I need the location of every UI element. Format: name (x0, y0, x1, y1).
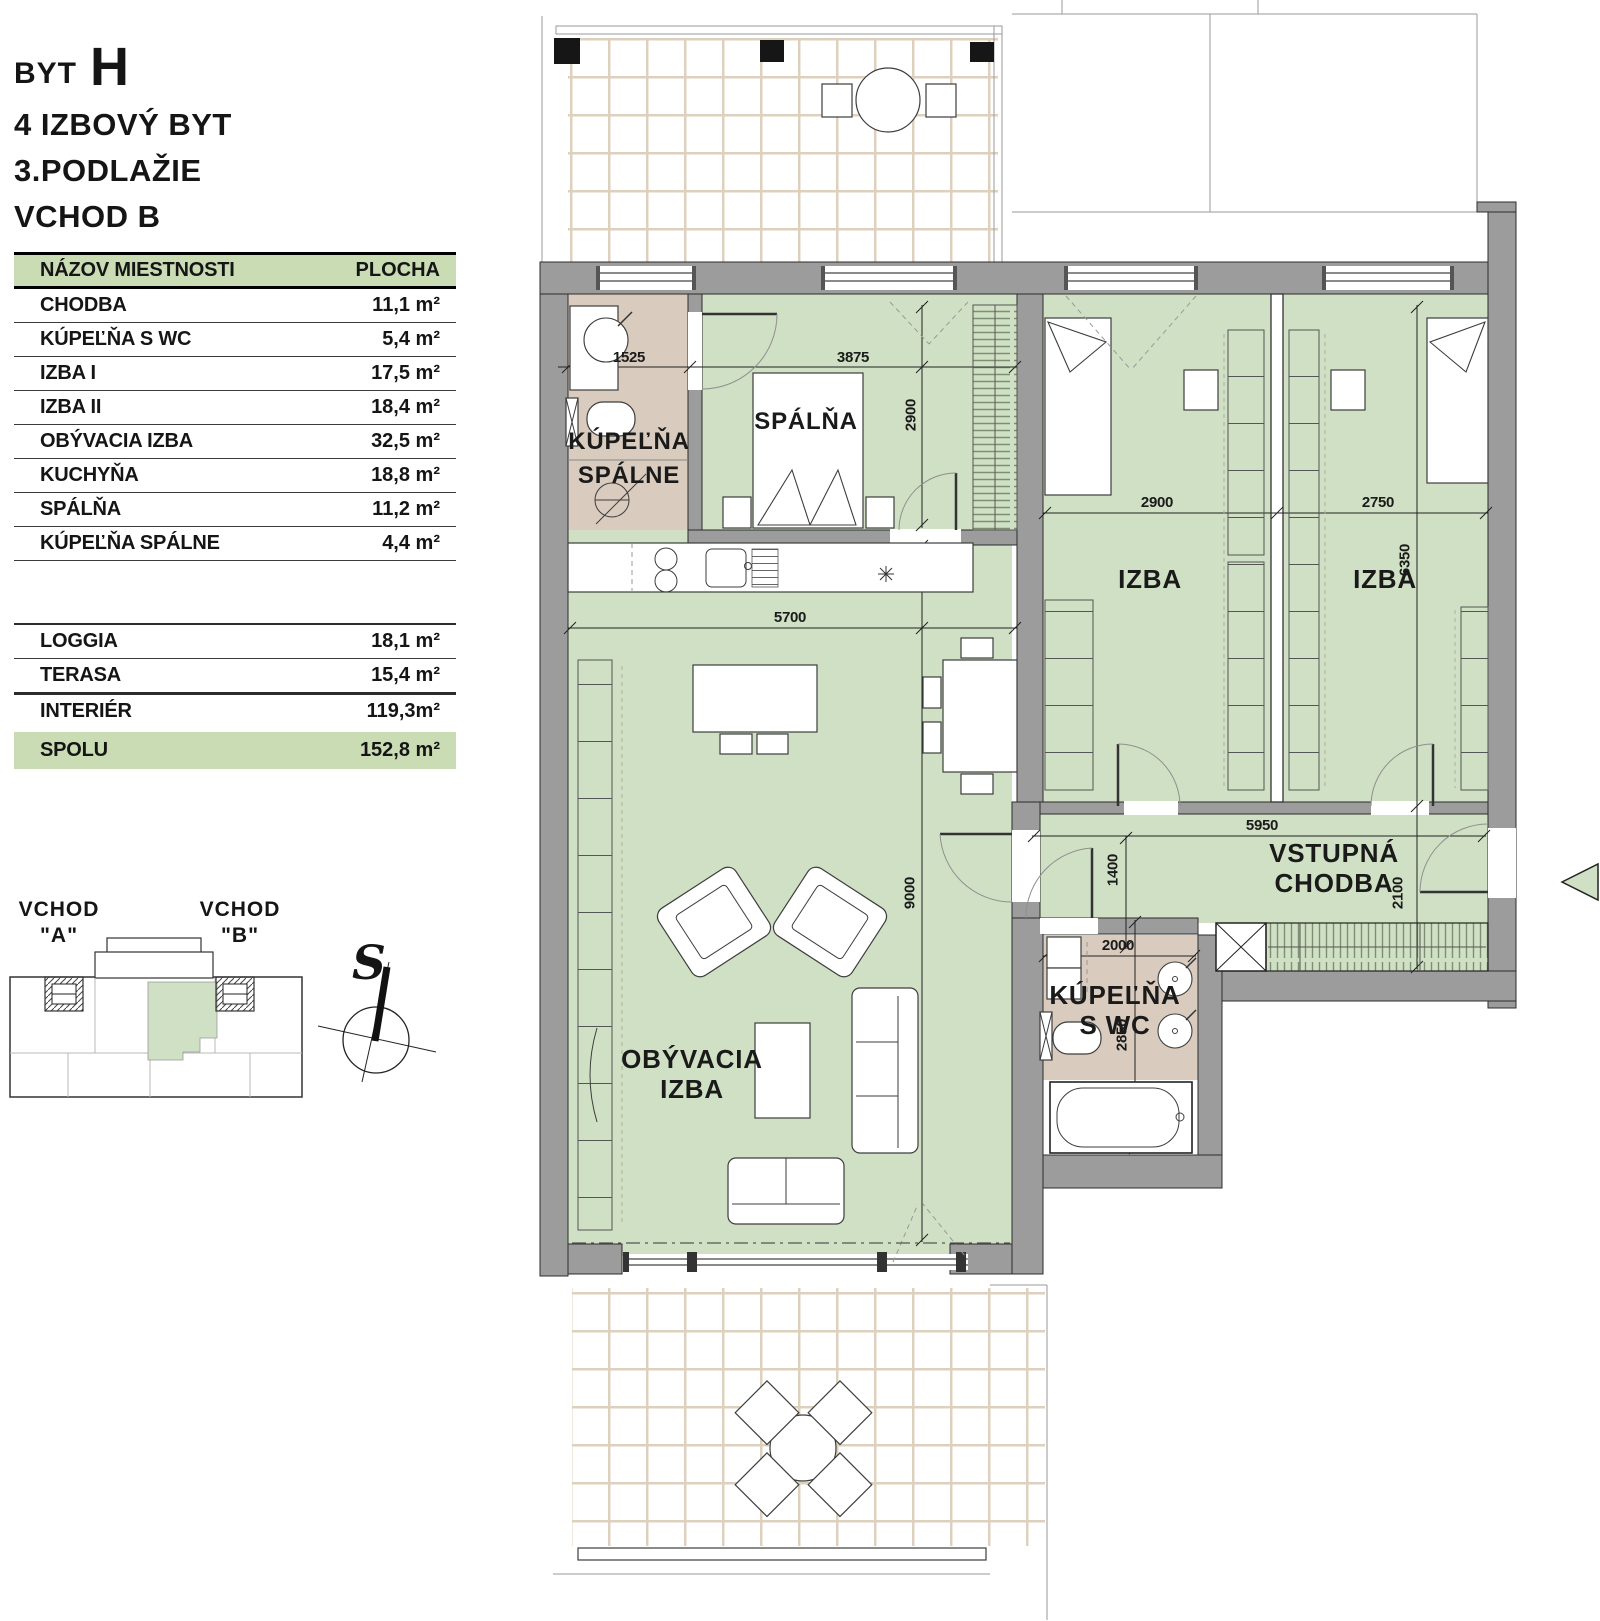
wardrobe (1461, 607, 1488, 790)
window (596, 266, 696, 290)
desk (1331, 370, 1365, 410)
table-row: OBÝVACIA IZBA32,5 m² (14, 425, 456, 459)
terrace-chair (822, 84, 852, 117)
header-name: NÁZOV MIESTNOSTI (14, 259, 235, 282)
terrace-top (542, 16, 1002, 262)
dim-bath2-depth: 2850 (1114, 1019, 1131, 1051)
wardrobe (1228, 330, 1264, 555)
column (760, 40, 784, 62)
dim-living-depth: 9000 (902, 877, 919, 909)
wall-cabinets (578, 660, 612, 1230)
unit-letter: H (90, 40, 129, 94)
table-row: IZBA II18,4 m² (14, 391, 456, 425)
dim-bath2-width: 2000 (1102, 937, 1134, 954)
terrace-table (856, 68, 920, 132)
room-label-obyvacia-2: IZBA (660, 1074, 724, 1105)
wardrobe (1289, 330, 1319, 790)
room-label-vstupna-2: CHODBA (1275, 868, 1394, 899)
nightstand (866, 497, 894, 528)
dim-hall-width: 5950 (1246, 817, 1278, 834)
entrance-label: VCHOD B (14, 201, 232, 232)
room-label-izba1: IZBA (1118, 564, 1182, 595)
light-symbol (878, 566, 894, 582)
kitchen (568, 543, 973, 592)
neighbor-outline (1012, 0, 1477, 212)
terrace-bottom (553, 1285, 1047, 1620)
dim-hall-passage: 1400 (1105, 854, 1122, 886)
floorplan-drawing (0, 0, 1600, 1621)
title-block: BYT H 4 IZBOVÝ BYT 3.PODLAŽIE VCHOD B (14, 40, 232, 232)
bathtub (1050, 1082, 1192, 1153)
room-label-kupelna-spalne-2: SPÁLNE (578, 462, 680, 490)
floorplan-sheet: BYT H 4 IZBOVÝ BYT 3.PODLAŽIE VCHOD B NÁ… (0, 0, 1600, 1621)
entrance-arrow (1562, 864, 1598, 900)
apartment-type: 4 IZBOVÝ BYT (14, 109, 232, 140)
table-row: KÚPEĽŇA SPÁLNE4,4 m² (14, 527, 456, 561)
chair (961, 638, 993, 658)
dim-izba1-width: 2900 (1141, 494, 1173, 511)
nightstand (723, 497, 751, 528)
chair (961, 774, 993, 794)
table-row: INTERIÉR119,3m² (14, 695, 456, 728)
column (554, 38, 580, 64)
dim-living-width: 5700 (774, 609, 806, 626)
stair-core (216, 977, 254, 1011)
table-row: CHODBA11,1 m² (14, 289, 456, 323)
entrance-b-quote: "B" (221, 924, 259, 948)
chair (923, 722, 941, 753)
desk (1184, 370, 1218, 410)
room-label-vstupna-1: VSTUPNÁ (1269, 838, 1399, 869)
room-label-kupelna-spalne-1: KÚPEĽŇA (568, 428, 690, 456)
chair (720, 734, 752, 754)
column (970, 42, 994, 62)
window (1322, 266, 1454, 290)
table-header: NÁZOV MIESTNOSTI PLOCHA (14, 252, 456, 289)
sofa (852, 988, 918, 1153)
dim-hall-depth: 2100 (1390, 877, 1407, 909)
room-label-kupelna-wc-1: KÚPEĽŇA (1049, 980, 1180, 1011)
washer (1047, 937, 1081, 968)
chair (923, 677, 941, 708)
living-floor (568, 530, 1012, 1244)
shelf (1045, 600, 1093, 790)
coffee-table (755, 1023, 810, 1118)
stair-core (45, 977, 83, 1011)
terrace-chair (926, 84, 956, 117)
izba-divider-wall (1271, 294, 1283, 802)
dim-izba-depth: 6350 (1397, 544, 1414, 576)
chair (757, 734, 788, 754)
window (1064, 266, 1198, 290)
dim-spalna-depth: 2900 (903, 399, 920, 431)
table-gap (14, 561, 456, 623)
table-row: SPÁLŇA11,2 m² (14, 493, 456, 527)
table-row: KUCHYŇA18,8 m² (14, 459, 456, 493)
table-row: KÚPEĽŇA S WC5,4 m² (14, 323, 456, 357)
table-row: IZBA I17,5 m² (14, 357, 456, 391)
room-label-spalna: SPÁLŇA (754, 408, 857, 436)
entrance-a-quote: "A" (40, 924, 78, 948)
table-row: LOGGIA18,1 m² (14, 623, 456, 659)
table-row: TERASA15,4 m² (14, 659, 456, 695)
wardrobe (1228, 562, 1264, 790)
drainboard (752, 549, 778, 587)
railing (578, 1548, 986, 1560)
dim-bath1-width: 1525 (613, 349, 645, 366)
entrance-b-label: VCHOD (200, 898, 281, 922)
room-label-obyvacia-1: OBÝVACIA (621, 1044, 763, 1075)
sliding-door (623, 1252, 968, 1272)
floor-label: 3.PODLAŽIE (14, 155, 232, 186)
loveseat (728, 1158, 844, 1224)
dining-table (943, 660, 1017, 772)
dim-izba2-width: 2750 (1362, 494, 1394, 511)
entrance-a-label: VCHOD (19, 898, 100, 922)
dim-spalna-width: 3875 (837, 349, 869, 366)
area-table: NÁZOV MIESTNOSTI PLOCHA CHODBA11,1 m² KÚ… (14, 252, 456, 769)
window (821, 266, 957, 290)
header-area: PLOCHA (356, 259, 456, 282)
table-total-row: SPOLU152,8 m² (14, 732, 456, 769)
compass-south-label: S (352, 936, 386, 991)
byt-label: BYT (14, 59, 77, 94)
kitchen-table (693, 665, 817, 732)
locator-plan (10, 938, 302, 1097)
